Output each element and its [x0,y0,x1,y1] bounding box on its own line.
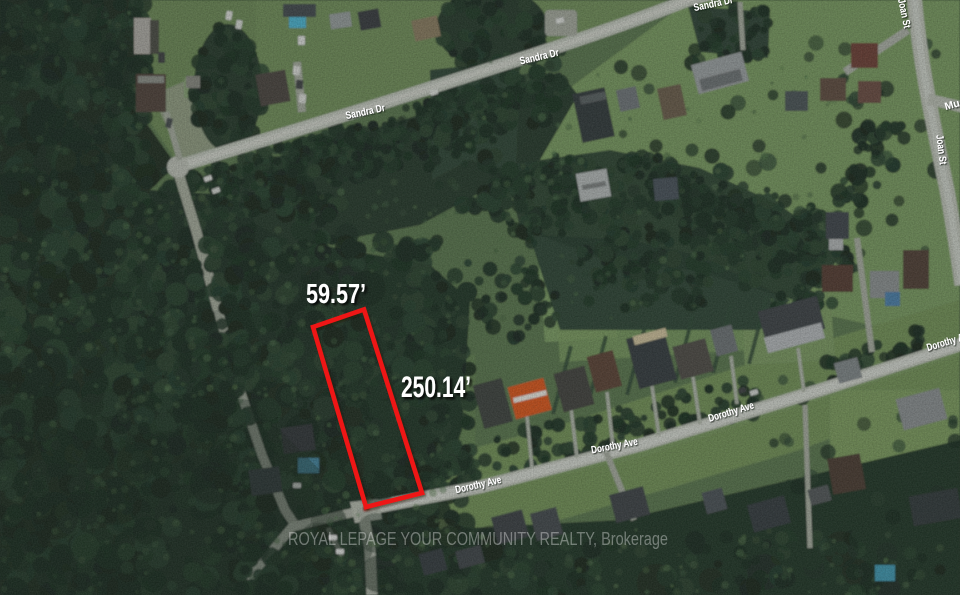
svg-text:59.57’: 59.57’ [306,278,366,309]
svg-text:ROYAL LEPAGE YOUR COMMUNITY RE: ROYAL LEPAGE YOUR COMMUNITY REALTY, Brok… [288,529,668,549]
svg-text:250.14’: 250.14’ [401,371,471,404]
